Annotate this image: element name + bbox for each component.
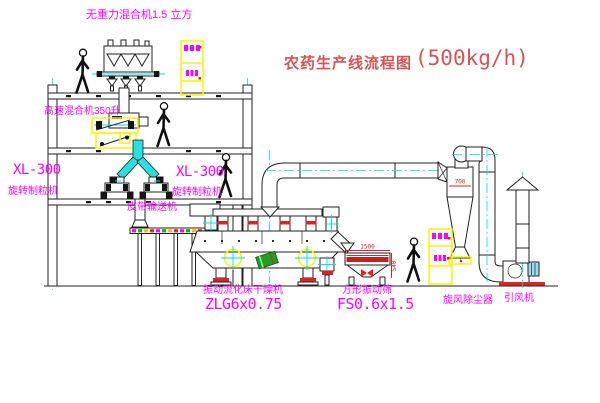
label-high-speed-mixer: 高速混合机350升 — [44, 107, 121, 117]
diagram-title: 农药生产线流程图 (500kg/h) — [284, 46, 529, 73]
label-gravity-free-mixer: 无重力混合机1.5 立方 — [86, 10, 192, 21]
dim-cyclone: 700 — [455, 179, 466, 186]
process-flow-drawing: 700 1500 — [0, 0, 600, 403]
label-granulator-name-left: 旋转制粒机 — [8, 187, 58, 197]
y-pipe — [117, 140, 159, 179]
screen-fine-outlet — [318, 256, 336, 285]
dim-screen-height: 540 — [391, 260, 398, 271]
label-granulator-model-left: XL-300 — [13, 163, 61, 177]
dim-screen-length: 1500 — [360, 244, 375, 251]
diagram-title-capacity: (500kg/h) — [415, 46, 529, 70]
label-granulator-model-mid: XL-300 — [176, 165, 224, 179]
induced-draft-fan — [499, 261, 545, 286]
granulator-left — [101, 177, 133, 199]
label-screen-model: FS0.6x1.5 — [337, 297, 414, 312]
worker-floor2 — [158, 103, 170, 146]
label-belt-conveyor: 皮带输送机 — [127, 203, 177, 213]
control-cabinet-top — [181, 41, 203, 95]
gravity-free-mixer — [92, 40, 165, 115]
diagram-title-cn: 农药生产线流程图 — [284, 52, 412, 73]
label-cyclone: 旋风除尘器 — [443, 296, 493, 306]
cyclone-separator: 700 — [447, 160, 473, 268]
label-fan: 引风机 — [504, 294, 534, 304]
label-dryer-model: ZLG6x0.75 — [205, 297, 282, 312]
worker-roof — [77, 49, 89, 92]
granulator-right — [140, 177, 172, 199]
label-granulator-name-mid: 旋转制粒机 — [172, 188, 222, 198]
worker-ground — [408, 238, 420, 281]
